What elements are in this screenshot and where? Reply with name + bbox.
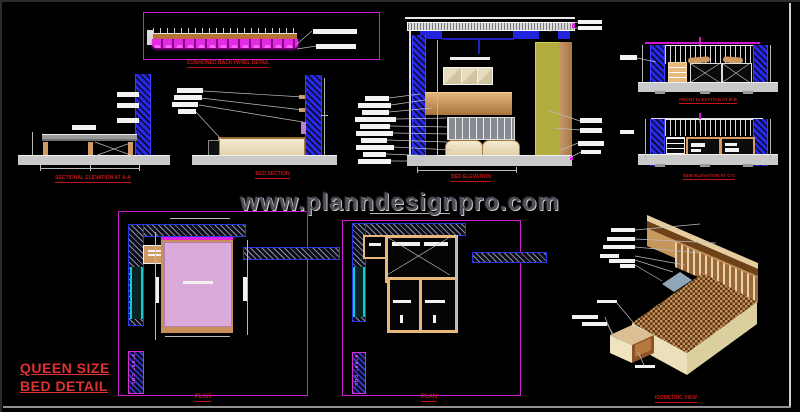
floor-foot	[743, 91, 753, 94]
dimension-line	[417, 170, 517, 171]
annotation-bar	[578, 20, 602, 24]
ladder-unit	[666, 137, 685, 155]
ceiling-line	[405, 17, 575, 19]
annotation-bar	[177, 88, 203, 93]
dimension-tick	[40, 165, 41, 171]
column-size-text: 9"X9" COL.	[354, 355, 359, 389]
annotation-bar	[620, 55, 637, 60]
dimension-line	[32, 132, 33, 155]
sheet-border-bottom	[3, 406, 791, 408]
framing-detail	[369, 243, 381, 246]
headrail-magenta	[645, 42, 760, 44]
drawer-front	[725, 148, 739, 152]
mattress	[164, 242, 232, 327]
dimension-line	[170, 218, 230, 219]
annotation-bar	[609, 259, 635, 263]
bed-leg	[128, 142, 133, 155]
dimension-tick	[516, 167, 517, 173]
floor-end-magenta	[570, 156, 573, 160]
annotation-bar	[117, 103, 139, 108]
dimension-tick	[321, 115, 328, 116]
dimension-line	[770, 45, 771, 82]
annotation-bar	[620, 130, 634, 134]
ceiling-end-magenta	[572, 23, 575, 28]
annotation-bar	[597, 300, 617, 303]
dimension-line	[645, 119, 646, 162]
label-bed-elevation: BED ELEVATION	[426, 174, 516, 182]
headboard-band	[425, 92, 512, 115]
column-size-text: 9"X9" COL.	[131, 354, 136, 388]
annotation-bar	[178, 109, 196, 114]
dimension-line	[165, 336, 230, 337]
dimension-line	[642, 45, 643, 82]
annotation-bar	[363, 152, 386, 157]
annotation-bar	[358, 103, 391, 108]
cushion-panel-edge	[301, 122, 306, 134]
annotation-bar	[572, 315, 598, 319]
ceiling-band	[407, 22, 575, 31]
curtain-drop	[478, 40, 480, 54]
dimension-line	[456, 235, 457, 330]
dimension-tick	[139, 165, 140, 171]
cad-drawing-sheet: www.planndesignpro.com QUEEN SIZE BED DE…	[0, 0, 800, 412]
dimension-line	[247, 240, 248, 335]
annotation-bar	[117, 92, 139, 97]
annotation-bar	[361, 138, 387, 143]
wall-right-extension	[472, 252, 547, 263]
wall-clip	[299, 108, 305, 112]
annotation-bar	[72, 125, 96, 130]
annotation-bar	[582, 322, 607, 326]
annotation-bar	[580, 128, 602, 133]
watermark: www.planndesignpro.com	[0, 189, 800, 217]
page-title: QUEEN SIZE BED DETAIL	[20, 359, 110, 395]
view-cushion-panel-detail	[143, 12, 380, 60]
iso-drawer-unit	[610, 323, 654, 365]
floor-foot	[700, 91, 710, 94]
floor-foot	[700, 164, 710, 167]
dimension-line	[437, 40, 438, 155]
framing-detail	[393, 300, 411, 303]
dimension-tick	[417, 167, 418, 173]
framing-detail	[425, 300, 445, 303]
view-plan-right: 9"X9" COL. PLAN	[340, 205, 555, 405]
annotation-bar	[172, 102, 198, 107]
floor-foot	[655, 91, 665, 94]
framing-detail	[424, 242, 448, 246]
framing-detail	[400, 315, 403, 323]
drawer-front	[691, 143, 705, 147]
wall-clip	[299, 95, 305, 99]
drawer-front	[725, 143, 737, 146]
panel-cushion-strip	[152, 39, 298, 48]
sheet-border-top	[0, 0, 800, 2]
annotation-bar	[578, 26, 602, 30]
framing-detail	[392, 242, 420, 246]
annotation-bar	[607, 237, 635, 241]
label-isometric: ISOMETRIC VIEW	[646, 395, 706, 403]
wall-frame	[461, 67, 478, 85]
door-window-strip	[130, 267, 143, 319]
title-line1: QUEEN SIZE	[20, 359, 110, 377]
annotation-bar	[358, 159, 391, 164]
label-side-elevation: SIDE ELEVATION AT C-C	[664, 173, 754, 180]
annotation-bar	[578, 141, 604, 146]
label-bed-section: BED SECTION	[230, 171, 315, 179]
annotation-bar	[581, 150, 601, 154]
title-line2: BED DETAIL	[20, 377, 110, 395]
floor-foot	[743, 164, 753, 167]
dimension-line	[155, 232, 156, 340]
annotation-bar	[117, 118, 139, 123]
cove-light	[558, 31, 570, 39]
floor-band	[407, 155, 572, 166]
framing-box-lower-left	[387, 277, 423, 333]
annotation-bar	[174, 95, 202, 100]
annotation-bar	[362, 110, 389, 115]
label-sectional-elevation: SECTIONAL ELEVATION AT A-A	[28, 175, 158, 183]
drawer-front	[691, 149, 701, 152]
wall-edge-line	[409, 22, 411, 155]
floor-foot	[655, 164, 665, 167]
cove-light	[513, 31, 539, 39]
shelf-line	[450, 57, 490, 60]
wall-column	[753, 45, 768, 82]
wardrobe-panel-wood	[559, 42, 572, 155]
view-side-elevation: SIDE ELEVATION AT C-C	[615, 108, 795, 193]
dimension-line	[770, 119, 771, 162]
framing-detail	[433, 315, 436, 323]
wall-frame	[477, 67, 493, 85]
dimension-line	[324, 78, 325, 155]
view-plan-left: 9"X9" COL. PLAN	[110, 205, 340, 405]
bed-leg	[43, 142, 48, 155]
wall-top	[128, 224, 246, 237]
wall-frame	[443, 67, 462, 85]
label-cushion-detail: CUSHIONED BACK PANEL DETAIL	[148, 60, 308, 68]
annotation-bar	[611, 228, 635, 232]
wall-column	[412, 35, 426, 155]
view-bed-section: BED SECTION	[170, 75, 345, 190]
annotation-bar	[365, 96, 389, 101]
annotation-bar	[360, 124, 390, 129]
view-isometric: ISOMETRIC VIEW	[565, 210, 795, 405]
view-front-elevation: FRONT ELEVATION AT B-B	[615, 20, 795, 110]
cushion-slat-panel	[447, 117, 515, 140]
mattress-center-mark	[183, 281, 213, 284]
annotation-bar	[600, 254, 619, 258]
door-window-strip	[353, 267, 365, 317]
label-plan-left: PLAN	[183, 394, 223, 402]
wall-column	[650, 45, 665, 82]
column-hatched: 9"X9" COL.	[352, 352, 366, 394]
framing-box-lower-right	[419, 277, 458, 333]
floor-band	[192, 155, 337, 165]
annotation-bar	[580, 118, 602, 123]
view-bed-elevation: BED ELEVATION	[350, 10, 610, 190]
bed-leg	[88, 142, 93, 155]
label-plan-right: PLAN	[409, 394, 449, 402]
label-front-elevation: FRONT ELEVATION AT B-B	[663, 97, 753, 104]
column-hatched: 9"X9" COL.	[128, 351, 144, 394]
bed-frame-rail	[42, 139, 137, 141]
annotation-bar	[356, 131, 393, 136]
annotation-bar	[355, 117, 396, 122]
wall-column	[305, 75, 322, 157]
wardrobe-panel-olive	[535, 42, 560, 157]
wall-right-extension	[243, 247, 340, 260]
view-sectional-elevation: SECTIONAL ELEVATION AT A-A	[10, 70, 190, 190]
dimension-tick	[90, 165, 91, 171]
annotation-bar	[356, 145, 394, 150]
floor-band	[18, 155, 170, 165]
annotation-bar	[603, 245, 635, 249]
